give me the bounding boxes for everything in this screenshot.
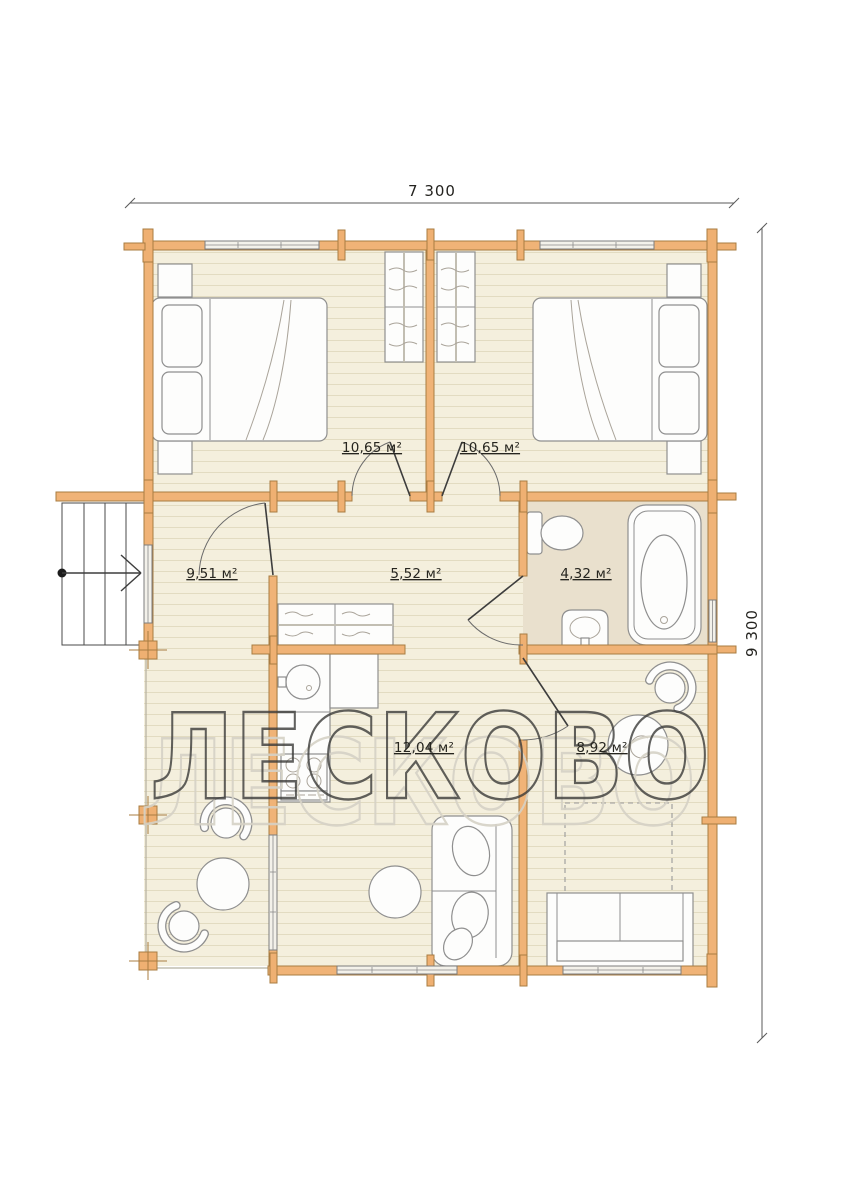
wall-between-bedrooms [426, 250, 434, 497]
watermark: ЛЕСКОВО ЛЕСКОВО [140, 688, 710, 852]
window-kitchen [337, 966, 457, 974]
double-bed [152, 298, 327, 441]
label-hallway: 9,51 м² [186, 566, 237, 582]
wall-bedrooms-south-2 [410, 492, 442, 501]
veranda-table [197, 858, 249, 910]
pillow [659, 305, 699, 367]
glazing-veranda-kitchen [269, 835, 277, 950]
wall-bedrooms-south-1 [144, 492, 352, 501]
wardrobe [385, 252, 423, 362]
label-living-room: 8,92 м² [576, 740, 627, 756]
label-kitchen-dining: 12,04 м² [394, 740, 454, 756]
watermark-text: ЛЕСКОВО [150, 688, 710, 826]
pillow [659, 372, 699, 434]
wall-hall-corridor [269, 576, 277, 645]
dining-table [369, 866, 421, 918]
window-bedroom-left [205, 241, 319, 249]
nightstand [667, 264, 701, 297]
window-living [563, 966, 681, 974]
stairs-outline [62, 503, 144, 645]
dimension-height-label: 9 300 [743, 609, 761, 657]
label-bathroom: 4,32 м² [560, 566, 611, 582]
porch-beam [56, 492, 144, 501]
label-bedroom-right: 10,65 м² [460, 440, 520, 456]
pillow [162, 372, 202, 434]
washbasin [562, 610, 608, 646]
dimension-width-label: 7 300 [408, 182, 456, 200]
bathtub [628, 505, 701, 645]
window-bedroom-right [540, 241, 654, 249]
label-bedroom-left: 10,65 м² [342, 440, 402, 456]
floor-plan-drawing: 7 300 9 300 [0, 0, 848, 1200]
double-bed [533, 298, 707, 441]
floor-plan-page: 7 300 9 300 [0, 0, 848, 1200]
entrance-door [144, 545, 152, 623]
wall-bathroom-south [519, 645, 717, 654]
entrance-stairs [58, 503, 145, 645]
wall-bedrooms-south-3 [500, 492, 717, 501]
nightstand [158, 264, 192, 297]
corridor-wardrobe [278, 604, 393, 645]
label-corridor: 5,52 м² [390, 566, 441, 582]
wardrobe [437, 252, 475, 362]
window-bathroom [709, 600, 716, 642]
pillow [162, 305, 202, 367]
nightstand [158, 441, 192, 474]
nightstand [667, 441, 701, 474]
